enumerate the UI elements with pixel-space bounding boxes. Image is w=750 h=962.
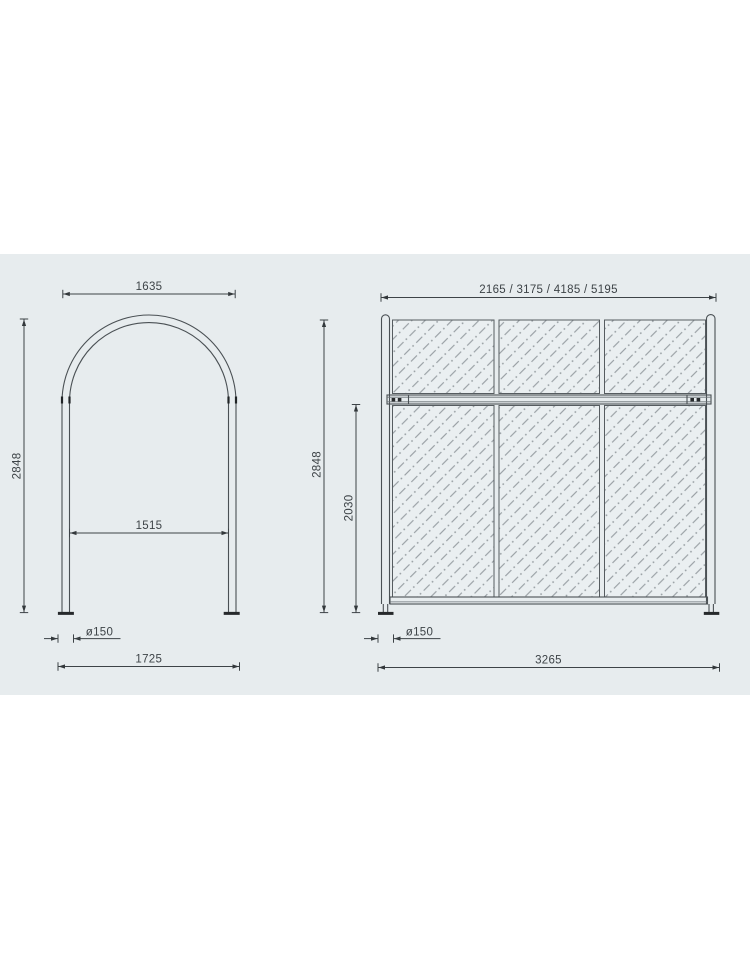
dim-label-lower-section-height: 2030 <box>344 495 356 522</box>
panel-frame <box>378 315 719 614</box>
bolt <box>398 398 402 401</box>
dim-label-overall-length: 3265 <box>535 654 562 666</box>
dim-label-length-options: 2165 / 3175 / 4185 / 5195 <box>479 284 618 296</box>
dim-label-height-side: 2848 <box>312 451 324 478</box>
dim-label-overall-width: 1725 <box>135 653 162 665</box>
glass-panel <box>499 406 600 598</box>
glass-panel <box>499 320 600 394</box>
glass-panel <box>605 406 706 598</box>
dim-label-base-plate-side: ø150 <box>406 626 433 638</box>
bolt <box>690 398 694 401</box>
bolt <box>392 398 396 401</box>
bolt <box>697 398 701 401</box>
dim-label-top-width: 1635 <box>136 281 163 293</box>
page: 1635 2848 1515 ø150 <box>0 0 750 962</box>
glass-panel <box>393 406 495 598</box>
glass-panel <box>393 320 495 394</box>
dim-label-height-front: 2848 <box>12 453 24 480</box>
glass-panel <box>605 320 706 394</box>
dim-label-base-plate-front: ø150 <box>86 626 113 638</box>
technical-drawing: 1635 2848 1515 ø150 <box>0 0 750 962</box>
dim-label-inner-width: 1515 <box>136 520 163 532</box>
